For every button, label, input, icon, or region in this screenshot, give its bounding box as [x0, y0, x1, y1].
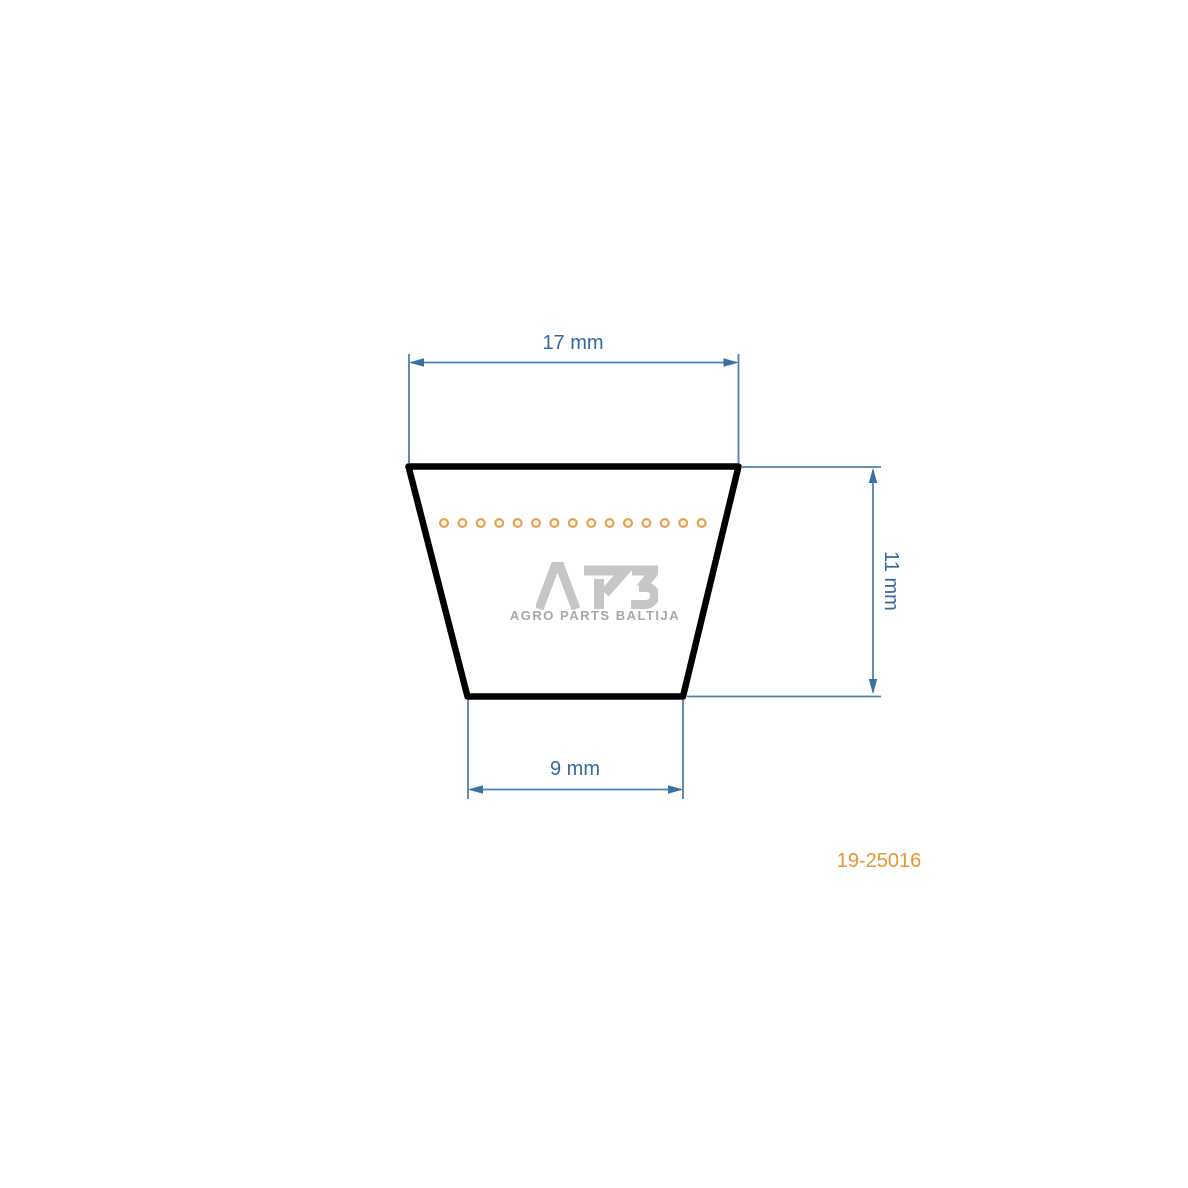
arrowhead-right [668, 785, 683, 793]
part-number: 19-25016 [837, 851, 922, 871]
logo-letter-a [539, 565, 576, 609]
apb-logo-icon [536, 562, 658, 610]
logo-letter-p-stem [594, 579, 604, 609]
apb-logo-subtitle: AGRO PARTS BALTIJA [510, 609, 680, 622]
top-width-dimension [409, 354, 739, 463]
arrowhead-right [724, 358, 739, 366]
logo-letter-p [584, 571, 625, 594]
arrowhead-left [409, 358, 424, 366]
arrowhead-up [869, 468, 877, 483]
top-width-label: 17 mm [542, 333, 603, 353]
arrowhead-down [869, 679, 877, 694]
logo-letter-b-bowl [631, 588, 655, 605]
bottom-width-dimension [468, 700, 683, 799]
bottom-width-label: 9 mm [550, 759, 600, 779]
arrowhead-left [468, 785, 483, 793]
belt-diagram-canvas: 17 mm 11 mm 9 mm AGRO PARTS BALTIJA 19-2… [0, 0, 1188, 1188]
height-label: 11 mm [881, 551, 901, 611]
